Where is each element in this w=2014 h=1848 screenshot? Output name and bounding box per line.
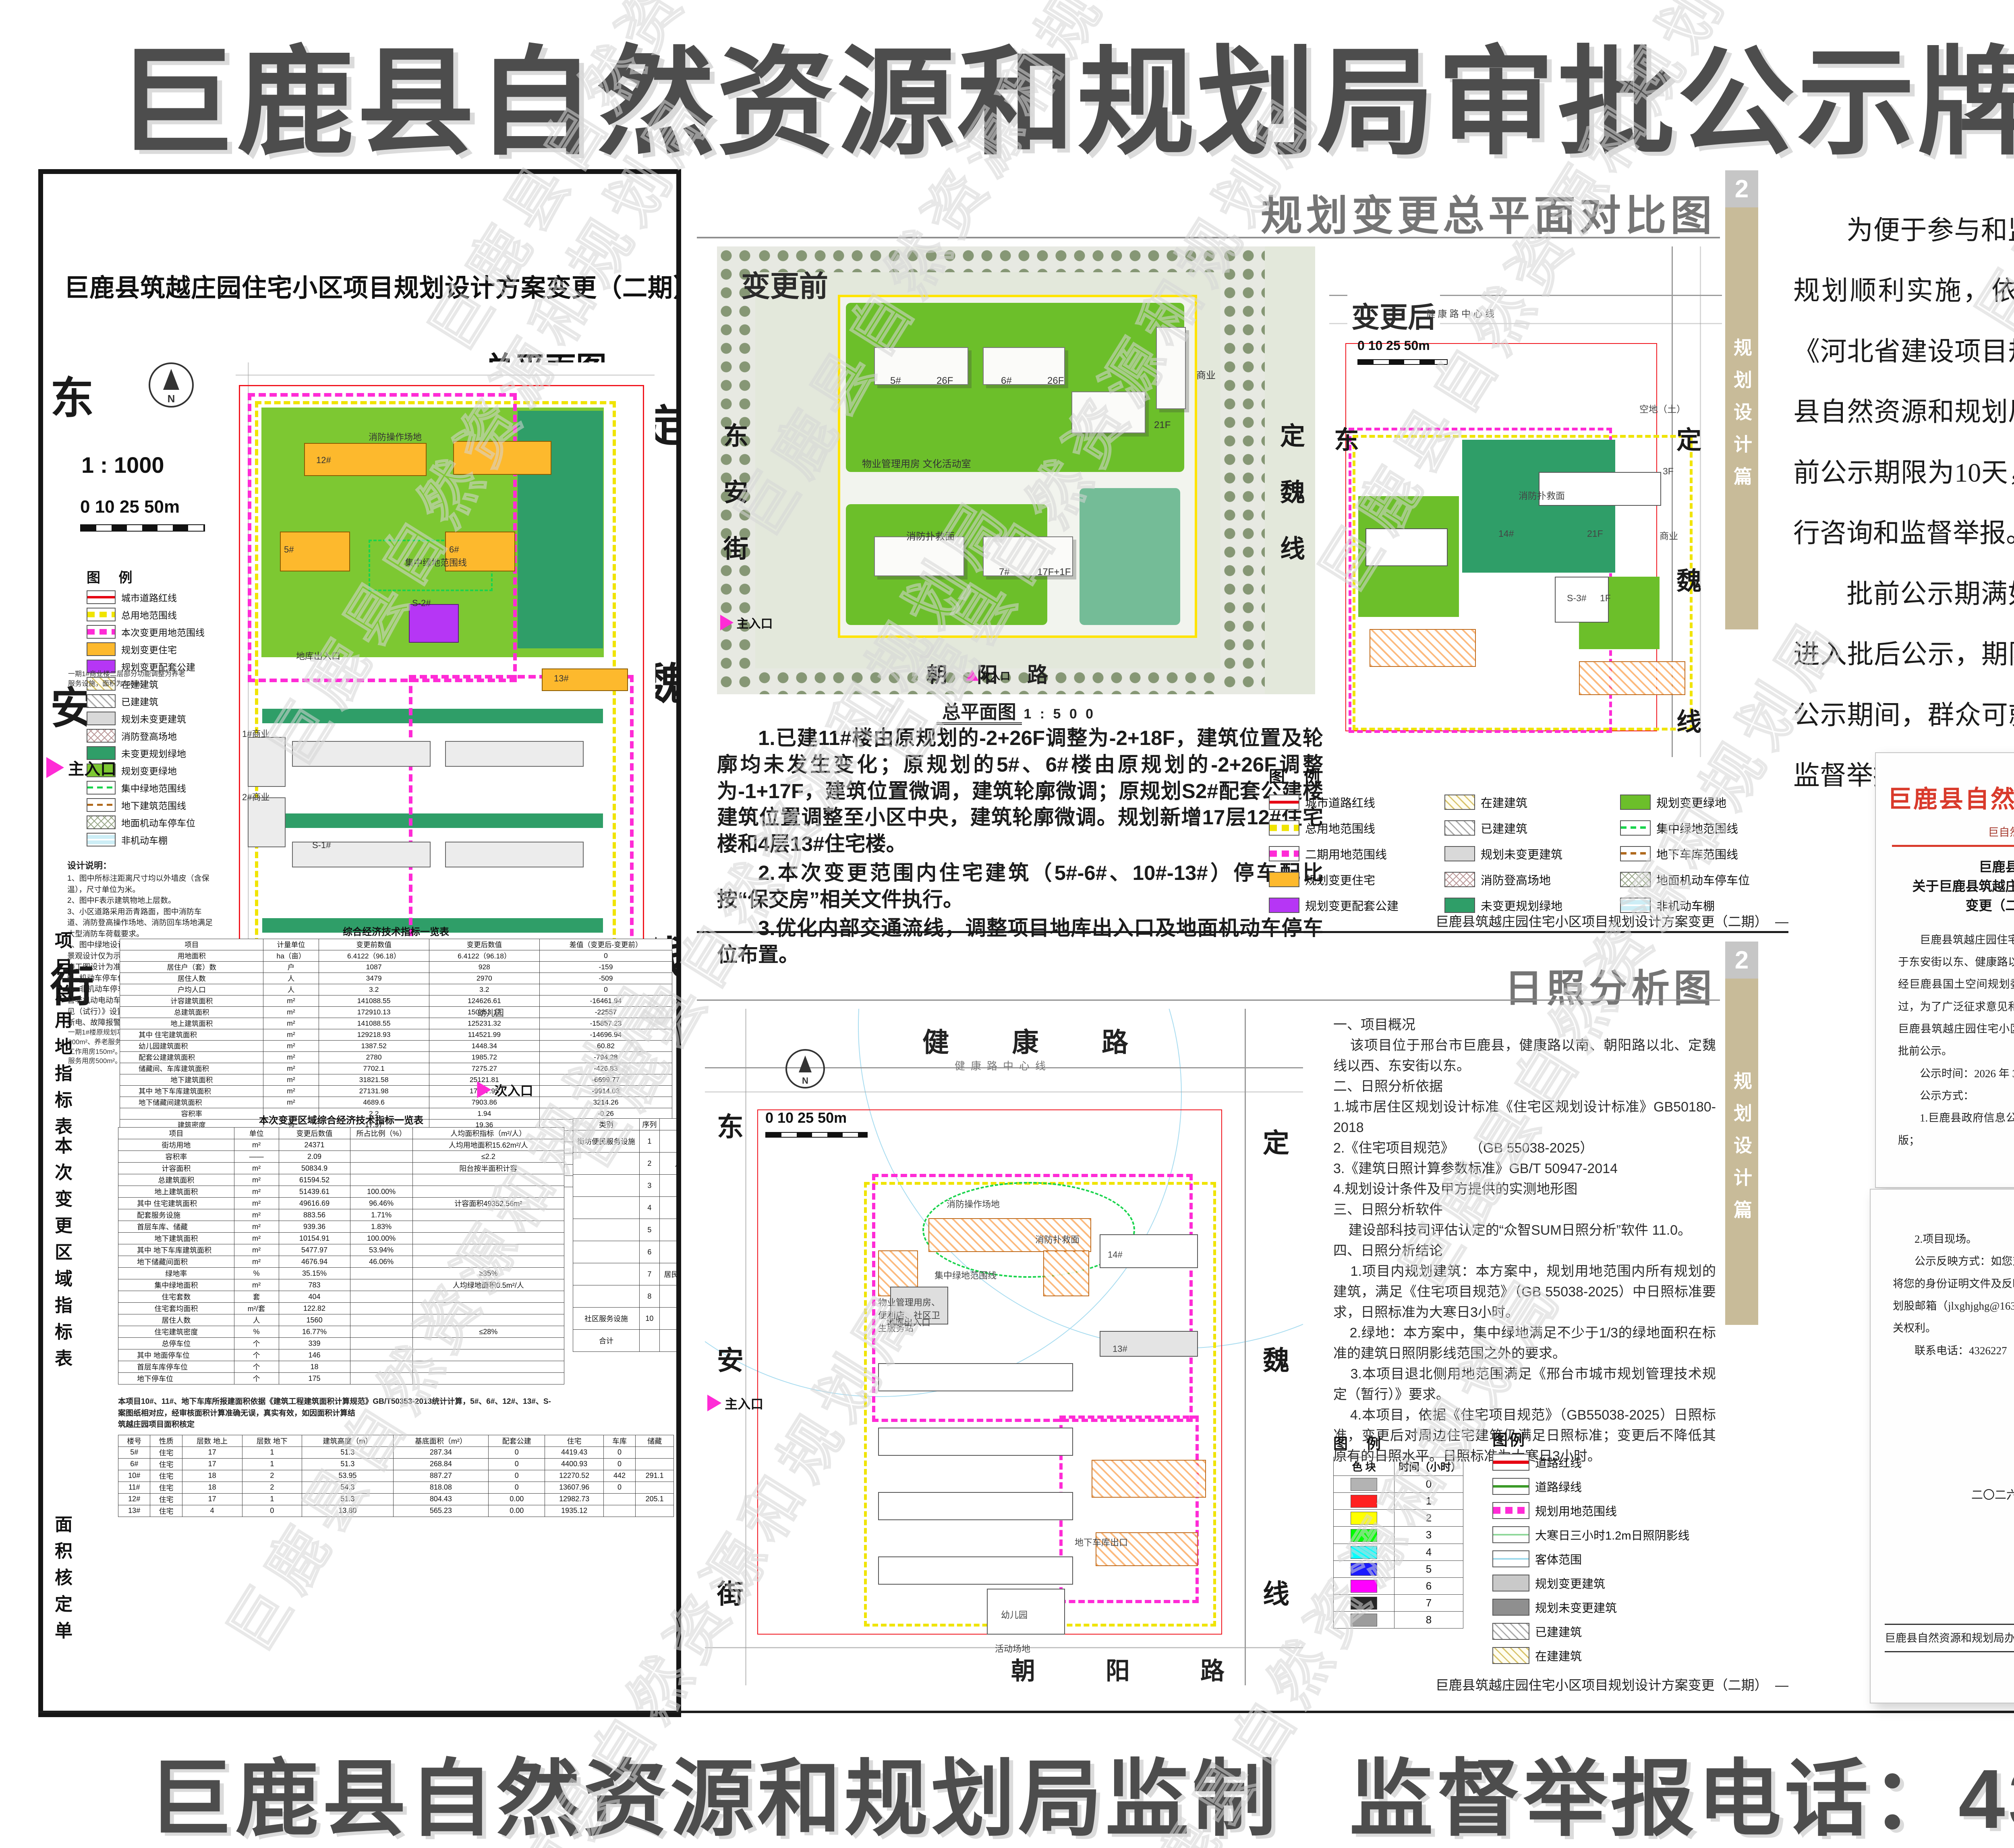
page-number: 2: [1871, 1685, 2014, 1697]
scalebar-label: 0 10 25 50m: [80, 497, 180, 517]
table-row: 3室外健身: [573, 1175, 682, 1197]
footer-hotline: 监督举报电话：4326227: [1349, 1731, 2014, 1848]
color-chip: [1351, 1614, 1377, 1627]
map-annotation: 活动场地: [995, 1642, 1030, 1655]
official-document-page1: 巨鹿县自然资源和规划局（文件） 巨自然规通字〔2026〕2 号 巨鹿县自然资源和…: [1875, 752, 2014, 1188]
comparison-legend: 图 例 城市道路红线 总用地范围线 二期用地范围线: [1269, 764, 1788, 920]
table-row: 居住人数人 34792970-509: [120, 973, 672, 984]
color-chip: [1351, 1495, 1377, 1508]
legend-swatch: [1444, 795, 1475, 810]
area-note-line: 本项目10#、11#、地下车库所报建面积依据《建筑工程建筑面积计算规范》GB/T…: [118, 1396, 674, 1408]
design-note: 2、图中F表示建筑物地上层数。: [67, 895, 216, 906]
legend-swatch: [87, 625, 116, 639]
legend-label: 消防登高场地: [121, 729, 177, 743]
document-paragraph: 公示反映方式：如您对该项目有不同意见和建议，公示期内请将您的身份证明文件及反映意…: [1893, 1250, 2014, 1339]
map-annotation: 7#: [999, 567, 1010, 578]
street-label: 街: [723, 528, 748, 565]
scalebar: [1357, 359, 1448, 365]
legend-item: 大寒日三小时1.2m日照阴影线: [1492, 1526, 1786, 1543]
sunshine-color-legend: 图 例 色 块 时间（小时） 0 1 2 3: [1333, 1432, 1470, 1629]
notice-board-poster: 巨鹿县自然资源和规划局审批公示牌 巨鹿县筑越庄园住宅小区项目规划设计方案变更（二…: [0, 0, 2014, 1848]
table-row: 地下储藏间面积m² 4676.9446.06%: [118, 1256, 564, 1268]
color-chip: [1351, 1580, 1377, 1593]
building: [453, 441, 551, 475]
after-plan: 变更后 0 10 25 50m 定 魏 线 东 健 康 路 中 心 线空地（土）…: [1329, 246, 1722, 757]
table-row: 地下建筑面积m² 31821.5825121.81-6699.77: [120, 1074, 672, 1086]
sunshine-analysis-text: 一、项目概况 该项目位于邢台市巨鹿县，健康路以南、朝阳路以北、定魏线以西、东安街…: [1333, 1015, 1716, 1467]
legend-label: 规划变更建筑: [1535, 1575, 1605, 1591]
red-divider: [1892, 845, 2014, 847]
before-caption: 总平面图 1 : 5 0 0: [717, 697, 1315, 724]
legend-label: 二期用地范围线: [1305, 845, 1387, 862]
document-header: 巨鹿县自然资源和规划局（文件）: [1876, 780, 2014, 815]
table-row: 10#住宅182 53.95887.27012270.52 442291.1: [118, 1470, 674, 1482]
analysis-paragraph: 一、项目概况: [1333, 1015, 1716, 1035]
street-label: 线: [1280, 528, 1305, 565]
master-plan-sheet: 巨鹿县筑越庄园住宅小区项目规划设计方案变更（二期） 总平面图 N 1 : 100…: [38, 169, 681, 1717]
street-label: 线: [1263, 1573, 1289, 1611]
table-title: 综合经济技术指标一览表: [120, 924, 672, 938]
legend-label: 地下建筑范围线: [121, 798, 186, 812]
map-annotation: 商业: [1660, 528, 1678, 542]
color-legend-row: 3: [1334, 1527, 1463, 1544]
official-document-page2: 2.项目现场。公示反映方式：如您对该项目有不同意见和建议，公示期内请将您的身份证…: [1870, 1189, 2014, 1703]
table-row: 计容面积m² 50834.9阳台按半面积计容: [118, 1163, 564, 1174]
legend-swatch: [87, 798, 116, 812]
legend-label: 城市道路红线: [121, 590, 177, 604]
drawing-caption: 巨鹿县筑越庄园住宅小区项目规划设计方案变更（二期） —: [1088, 911, 1788, 930]
issuing-office: 巨鹿县自然资源和规划局办公室: [1885, 1629, 2014, 1645]
document-footer: 巨鹿县自然资源和规划局办公室 2026 年 3 月 24 日印: [1885, 1629, 2014, 1645]
document-paragraph: 公示方式：: [1898, 1085, 2014, 1107]
legend-item: 规划未变更建筑: [1444, 842, 1613, 865]
area-note-line: 筑越庄园项目面积核定: [118, 1419, 674, 1431]
section-sidebar: 规划设计篇: [1725, 207, 1758, 629]
color-legend-row: 1: [1334, 1493, 1463, 1510]
map-annotation: 12#: [316, 455, 331, 466]
legend-swatch: [1620, 898, 1651, 913]
map-annotation: 消防扑救面: [906, 528, 955, 542]
secondary-entrance-marker: 次入口: [477, 1080, 533, 1099]
legend-label: 规划变更绿地: [121, 764, 177, 777]
legend-swatch: [87, 781, 116, 795]
before-plan: 变更前 东 安 街 定 魏 线 朝 阳 路 主入口 次入口 5#26F6#26F…: [717, 246, 1315, 694]
table-vertical-caption: 本次变更区域指标表: [49, 1136, 75, 1376]
design-note: 1、图中所标注距离尺寸均以外墙皮（含保温），尺寸单位为米。: [67, 873, 216, 895]
legend-item: 已建建筑: [1492, 1623, 1786, 1640]
table-row: 配套服务设施m² 883.561.71%: [118, 1209, 564, 1221]
legend-swatch: [1492, 1478, 1529, 1495]
map-annotation: 2#商业: [242, 790, 269, 803]
legend-swatch: [87, 590, 116, 604]
legend-label: 地面机动车停车位: [1656, 871, 1750, 888]
map-annotation: 1F: [1600, 593, 1611, 604]
map-annotation: 健 康 路 中 心 线: [1426, 306, 1494, 320]
map-annotation: 13#: [1113, 1344, 1127, 1354]
table-row: 居住人数人 1560: [118, 1314, 564, 1326]
legend-swatch: [1492, 1599, 1529, 1616]
table-row: 住宅套均面积m²/套 122.82: [118, 1303, 564, 1314]
map-scale: 1 : 1000: [81, 452, 164, 478]
map-annotation: 3F: [1663, 466, 1674, 477]
table-row: 2儿童、老年人: [573, 1153, 682, 1175]
entrance-arrow-icon: [477, 1081, 491, 1098]
legend-title: 图例: [1492, 1428, 1786, 1450]
street-label: 定: [1263, 1122, 1289, 1160]
color-chip: [1351, 1478, 1377, 1491]
board-bottom-rule: [38, 1711, 2014, 1713]
legend-item: 总用地范围线: [87, 608, 228, 621]
document-paragraph: 公示时间：2026 年 3 月 24 日--2026 年 4 月 2 日: [1898, 1063, 2014, 1085]
map-annotation: 5#: [284, 544, 294, 555]
legend-item: 城市道路红线: [87, 590, 228, 604]
table-row: 集中绿地面积m² 783人均绿地面积0.5m²/人: [118, 1279, 564, 1291]
analysis-paragraph: 建设部科技司评估认定的“众智SUM日照分析”软件 11.0。: [1333, 1220, 1716, 1241]
legend-swatch: [1444, 898, 1475, 913]
legend-item: 规划未变更建筑: [1492, 1599, 1786, 1616]
legend-swatch: [1269, 872, 1299, 887]
map-annotation: 集中绿地范围线: [934, 1269, 997, 1281]
table-row: 6#住宅171 51.3268.8404400.93 0: [118, 1458, 674, 1470]
divider: [697, 931, 1788, 933]
color-legend-row: 7: [1334, 1594, 1463, 1611]
area-verification: 本项目10#、11#、地下车库所报建面积依据《建筑工程建筑面积计算规范》GB/T…: [118, 1396, 674, 1517]
scalebar-label: 0 10 25 50m: [765, 1109, 847, 1126]
map-annotation: 消防扑救面: [1035, 1233, 1080, 1246]
table-vertical-caption: 面积核定单: [49, 1515, 75, 1648]
color-chip: [1351, 1546, 1377, 1559]
legend-label: 规划未变更建筑: [1535, 1599, 1617, 1616]
legend-item: 规划未变更建筑: [87, 712, 228, 725]
indicator-table-change-area: 本次变更区域综合经济技术指标一览表 项目 单位 变更后数值 所占比例（%） 人均…: [118, 1112, 564, 1384]
table-row: 其中 住宅建筑面积m² 49616.6996.46%计容面积49352.56m²: [118, 1198, 564, 1209]
analysis-paragraph: 4.规划设计条件及甲方提供的实测地形图: [1333, 1179, 1716, 1200]
legend-label: 道路红线: [1535, 1454, 1582, 1471]
sunshine-section-title: 日照分析图: [939, 958, 1716, 1013]
legend-title: 图 例: [87, 567, 228, 586]
legend-item: 集中绿地范围线: [1620, 817, 1788, 839]
legend-item: 集中绿地范围线: [87, 781, 228, 795]
map-annotation: 消防操作场地: [369, 430, 422, 443]
map-annotation: 6#: [449, 544, 459, 555]
legend-swatch: [1620, 846, 1651, 861]
footer-rule: [1885, 1651, 2014, 1652]
legend-label: 在建建筑: [1535, 1647, 1582, 1664]
legend-swatch: [87, 833, 116, 846]
map-annotation: S-2#: [412, 598, 431, 608]
legend-swatch: [1492, 1550, 1529, 1567]
legend-swatch: [1492, 1454, 1529, 1471]
legend-swatch: [87, 642, 116, 656]
table-row: 住宅建筑密度% 16.77%≤28%: [118, 1326, 564, 1338]
map-annotation: 地下车库出口: [1075, 1536, 1128, 1548]
legend-swatch: [87, 608, 116, 621]
table-row: 用地面积ha（亩） 6.4122（96.18）6.4122（96.18）0: [120, 950, 672, 962]
street-label: 安: [723, 472, 748, 508]
main-entrance-marker: 主入口: [707, 1394, 763, 1412]
divider: [697, 1000, 1720, 1001]
map-annotation: 13#: [554, 673, 569, 684]
table-row: 合计: [573, 1330, 682, 1352]
legend-swatch: [1620, 820, 1651, 836]
section-number-badge: 2: [1725, 170, 1758, 207]
legend-label: 已建建筑: [121, 694, 158, 708]
table-row: 总建筑面积m² 172910.13150353.13-22557: [120, 1007, 672, 1018]
analysis-paragraph: 1.项目内规划建筑：本方案中，规划用地范围内所有规划的建筑，满足《住宅项目规范》…: [1333, 1261, 1716, 1323]
legend-item: 在建建筑: [1492, 1647, 1786, 1664]
legend-items: 城市道路红线 总用地范围线 本次变更用地范围线 规划变更住宅: [87, 590, 228, 846]
map-annotation: 17F+1F: [1037, 567, 1071, 578]
legend-label: 地面机动车停车位: [121, 815, 195, 829]
color-chip: [1351, 1529, 1377, 1542]
page-title: 巨鹿县自然资源和规划局审批公示牌: [117, 7, 1869, 178]
legend-title: 图 例: [1333, 1432, 1470, 1453]
document-title: 巨鹿县自然资源和规划局: [1876, 857, 2014, 877]
color-legend-row: 6: [1334, 1577, 1463, 1594]
legend-swatch: [87, 729, 116, 743]
legend-swatch: [1492, 1526, 1529, 1543]
map-annotation: 5#: [890, 375, 901, 387]
analysis-paragraph: 3.《建筑日照计算参数标准》GB/T 50947-2014: [1333, 1159, 1716, 1179]
seal-date: 二〇二六年三月二十四日: [1971, 1486, 2014, 1502]
map-annotation: 商业: [1196, 367, 1216, 381]
change-notes: 1.已建11#楼由原规划的-2+26F调整为-2+18F，建筑位置及轮廓均未发生…: [717, 725, 1323, 971]
map-annotation: 地库出入口: [296, 649, 340, 662]
legend-swatch: [1620, 872, 1651, 887]
legend-label: 地下车库范围线: [1656, 845, 1738, 862]
section-sidebar: 规划设计篇: [1725, 979, 1758, 1325]
table-header-row: 项目 计量单位 变更前数值 变更后数值 差值（变更后-变更前）: [120, 939, 672, 950]
legend-item: 道路红线: [1492, 1454, 1786, 1471]
map-annotation: 21F: [1587, 528, 1603, 539]
color-legend-row: 2: [1334, 1510, 1463, 1527]
area-table: 楼号 性质 层数 地上 层数 地下 建筑高度（m） 基底面积（m²） 配套公建 …: [118, 1435, 674, 1517]
table-header-row: 项目 单位 变更后数值 所占比例（%） 人均面积指标（m²/人）: [118, 1128, 564, 1139]
legend-label: 总用地范围线: [1305, 819, 1375, 836]
map-legend: 图 例 城市道路红线 总用地范围线 本次变更用地范围线: [87, 567, 228, 850]
entrance-arrow-icon: [46, 757, 64, 778]
legend-swatch: [87, 815, 116, 829]
table-row: 总停车位个 339: [118, 1338, 564, 1349]
legend-swatch: [1444, 846, 1475, 861]
street-label: 线: [1676, 702, 1701, 738]
legend-label: 规划用地范围线: [1535, 1502, 1617, 1519]
legend-label: 未变更规划绿地: [121, 746, 186, 760]
secondary-entrance-marker: 次入口: [967, 668, 1010, 683]
table-row: 4便利店: [573, 1197, 682, 1219]
table-row: 地上建筑面积m² 51439.61100.00%: [118, 1186, 564, 1198]
document-title: 关于巨鹿县筑越庄园住宅小区项目规划设计方案: [1876, 877, 2014, 896]
analysis-paragraph: 2.绿地：本方案中，集中绿地满足不少于1/3的绿地面积在标准的建筑日照阴影线范围…: [1333, 1323, 1716, 1364]
legend-item: 地下建筑范围线: [87, 798, 228, 812]
table-row: 11#住宅182 54.3818.08013607.96 0: [118, 1482, 674, 1493]
legend-label: 规划未变更建筑: [121, 712, 186, 725]
table-row: 地下储藏间建筑面积m² 4689.67903.863214.26: [120, 1097, 672, 1108]
legend-label: 集中绿地范围线: [1656, 819, 1738, 836]
table-row: 配套公建建筑面积m² 27801985.72-794.28: [120, 1052, 672, 1063]
legend-label: 大寒日三小时1.2m日照阴影线: [1535, 1526, 1689, 1543]
design-notes-title: 设计说明：: [67, 859, 216, 871]
legend-swatch: [1444, 820, 1475, 836]
legend-swatch: [1269, 820, 1299, 836]
table-vertical-caption: 项目总用地指标表: [49, 931, 75, 1144]
legend-item: 规划变更建筑: [1492, 1575, 1786, 1591]
color-chip: [1351, 1512, 1377, 1525]
drawing-caption: 巨鹿县筑越庄园住宅小区项目规划设计方案变更（二期） —: [1088, 1674, 1788, 1694]
table-row: 街坊用地m² 24371人均用地面积15.62m²/人: [118, 1139, 564, 1151]
legend-item: 已建建筑: [1444, 817, 1613, 839]
legend-item: 地面机动车停车位: [1620, 868, 1788, 890]
street-label: 魏: [1263, 1339, 1289, 1378]
street-label: 定: [1676, 420, 1701, 456]
sunshine-line-legend: 图例 道路红线 道路绿线 规划用地范围线: [1492, 1428, 1786, 1671]
table-row: 地下停车位个 175: [118, 1373, 564, 1384]
table-row: 6生活垃圾: [573, 1241, 682, 1263]
document-title: 变更（二期）批前公示的通告: [1876, 896, 2014, 915]
legend-swatch: [1492, 1623, 1529, 1640]
analysis-paragraph: 1.城市居住区规划设计标准《住宅区规划设计标准》GB50180-2018: [1333, 1097, 1716, 1138]
legend-item: 二期用地范围线: [1269, 842, 1437, 865]
color-legend-row: 5: [1334, 1560, 1463, 1577]
street-label: 安: [717, 1339, 744, 1378]
legend-item: 消防登高场地: [1444, 868, 1613, 890]
map-note: 一期1#商业楼二层部分功能调整为养老服务设施，面积为350m²。: [68, 669, 189, 689]
table-row: 首层车库停车位个 18: [118, 1361, 564, 1373]
table-row: 户均人口人 3.23.20: [120, 984, 672, 995]
legend-item: 城市道路红线: [1269, 791, 1437, 813]
north-arrow-icon: N: [149, 362, 194, 408]
table-row: 街坊便民服务设施1物业管理: [573, 1130, 682, 1153]
legend-label: 规划未变更建筑: [1481, 845, 1562, 862]
legend-item: 规划变更住宅: [1269, 868, 1437, 890]
table-row: 地上建筑面积m² 141088.55125231.32-15857.23: [120, 1018, 672, 1029]
table-row: 住宅套数套 404: [118, 1291, 564, 1303]
legend-item: 在建建筑: [1444, 791, 1613, 813]
before-label: 变更前: [741, 263, 828, 305]
legend-label: 已建建筑: [1535, 1623, 1582, 1640]
table-row: 12#住宅171 51.3804.430.0012982.73 205.1: [118, 1493, 674, 1505]
legend-label: 本次变更用地范围线: [121, 625, 205, 639]
legend-swatch: [87, 712, 116, 725]
analysis-paragraph: 2.《住宅项目规范》 （GB 55038-2025）: [1333, 1138, 1716, 1159]
legend-item: 规划变更住宅: [87, 642, 228, 656]
map-annotation: 1#商业: [242, 727, 269, 740]
table-row: 容积率—— 2.09≤2.2: [118, 1151, 564, 1163]
legend-swatch: [1492, 1575, 1529, 1591]
analysis-paragraph: 3.本项目退北侧用地范围满足《邢台市城市规划管理技术规定（暂行）》要求。: [1333, 1364, 1716, 1405]
street-label: 东: [723, 416, 748, 452]
area-note-line: 案图纸相对应，经审核面积计算准确无误，真实有效，如因面积计算结: [118, 1408, 674, 1420]
document-number: 巨自然规通字〔2026〕2 号: [1876, 824, 2014, 839]
legend-swatch: [1269, 846, 1299, 861]
table-title: 本次变更区域综合经济技术指标一览表: [118, 1112, 564, 1126]
color-chip: [1351, 1563, 1377, 1576]
table-row: 其中 地面停车位个 146: [118, 1349, 564, 1361]
table-row: 绿地率% 35.15%≥35%: [118, 1268, 564, 1279]
analysis-paragraph: 该项目位于邢台市巨鹿县，健康路以南、朝阳路以北、定魏线以西、东安街以东。: [1333, 1035, 1716, 1076]
map-annotation: 消防扑救面: [1519, 488, 1565, 502]
scalebar: [765, 1132, 868, 1138]
footer-supervisor: 巨鹿县自然资源和规划局监制: [148, 1731, 1279, 1848]
analysis-paragraph: 四、日照分析结论: [1333, 1241, 1716, 1261]
map-annotation: S-3#: [1567, 593, 1587, 604]
table-row: 8地下车库出: [573, 1285, 682, 1308]
legend-swatch: [1492, 1502, 1529, 1519]
legend-label: 已建建筑: [1481, 819, 1527, 836]
north-arrow-icon: N: [785, 1049, 825, 1089]
document-paragraph: 巨鹿县筑越庄园住宅小区项目规划设计方案变更（二期）位于东安街以东、健康路以南。该…: [1898, 929, 2014, 1063]
table-row: 总建筑面积m² 61594.52: [118, 1174, 564, 1186]
analysis-paragraph: 三、日照分析软件: [1333, 1200, 1716, 1220]
scalebar: [80, 524, 205, 532]
legend-swatch: [87, 694, 116, 708]
legend-item: 已建建筑: [87, 694, 228, 708]
street-label: 东: [717, 1105, 744, 1144]
change-note: 2.本次变更范围内住宅建筑（5#-6#、10#-13#）停车配比按“保交房”相关…: [717, 860, 1323, 913]
legend-swatch: [1444, 872, 1475, 887]
map-annotation: 14#: [1108, 1250, 1123, 1260]
comparison-section-title: 规划变更总平面对比图: [939, 182, 1716, 242]
map-annotation: 消防操作场地: [947, 1197, 1000, 1210]
legend-label: 消防登高场地: [1481, 871, 1551, 888]
legend-swatch: [1269, 795, 1299, 810]
street-label: 定: [1280, 416, 1305, 452]
analysis-paragraph: 二、日照分析依据: [1333, 1076, 1716, 1097]
street-label: 东: [1334, 420, 1359, 456]
table-row: 5邮件和快递: [573, 1219, 682, 1241]
legend-swatch: [1269, 898, 1299, 913]
street-label: 健康路中心线: [955, 1058, 1051, 1073]
facility-side-table: 类别 序列 项目 街坊便民服务设施1物业管理 2儿童、老年人 3室外健身 4便利…: [573, 1118, 681, 1352]
table-row: 地下建筑面积m² 10154.91100.00%: [118, 1233, 564, 1244]
document-paragraph: 1.巨鹿县政府信息公开平台县自然资源和规划局信息公开专版；: [1898, 1107, 2014, 1152]
legend-label: 客体范围: [1535, 1550, 1582, 1567]
color-legend-row: 4: [1334, 1544, 1463, 1560]
legend-item: 地面机动车停车位: [87, 815, 228, 829]
legend-item: 客体范围: [1492, 1550, 1786, 1567]
table-header-row: 楼号 性质 层数 地上 层数 地下 建筑高度（m） 基底面积（m²） 配套公建 …: [118, 1435, 674, 1447]
map-annotation: 6#: [1001, 375, 1012, 387]
legend-item: 道路绿线: [1492, 1478, 1786, 1495]
sheet-title: 巨鹿县筑越庄园住宅小区项目规划设计方案变更（二期）: [64, 267, 681, 304]
map-annotation: 14#: [1498, 528, 1514, 539]
color-legend-row: 8: [1334, 1612, 1463, 1629]
legend-item: 地下车库范围线: [1620, 842, 1788, 865]
table-row: 7居民非机动车（棚）: [573, 1263, 682, 1285]
map-annotation: 26F: [1047, 375, 1064, 387]
map-annotation: 集中绿地范围线: [405, 556, 467, 569]
main-entrance-marker: 主入口: [720, 614, 773, 631]
legend-label: 道路绿线: [1535, 1478, 1582, 1495]
map-annotation: 26F: [937, 375, 953, 387]
table-row: 其中 地下车库建筑面积m² 5477.9753.94%: [118, 1244, 564, 1256]
table-row: 计容建筑面积m² 141088.55124626.61-16461.94: [120, 995, 672, 1007]
color-legend-row: 0: [1334, 1476, 1463, 1493]
table-row: 储藏间、车库建筑面积m² 7702.17275.27-426.83: [120, 1063, 672, 1074]
map-annotation: 空地（土）: [1639, 401, 1686, 415]
map-annotation: 物业管理用房 文化活动室: [862, 456, 971, 470]
legend-label: 规划变更绿地: [1656, 794, 1726, 811]
section-number-badge: 2: [1725, 942, 1758, 979]
table-row: 首层车库、储藏m² 939.361.83%: [118, 1221, 564, 1233]
table-row: 其中 地下车库建筑面积m² 27131.9817217.95-9914.03: [120, 1086, 672, 1097]
street-label: 魏: [1676, 561, 1701, 597]
legend-swatch: [1492, 1647, 1529, 1664]
street-label: 健 康 路: [922, 1021, 1156, 1060]
legend-item: 非机动车棚: [87, 833, 228, 846]
table-row: 居住户（套）数户 1087928-159: [120, 962, 672, 973]
legend-swatch: [1620, 795, 1651, 810]
